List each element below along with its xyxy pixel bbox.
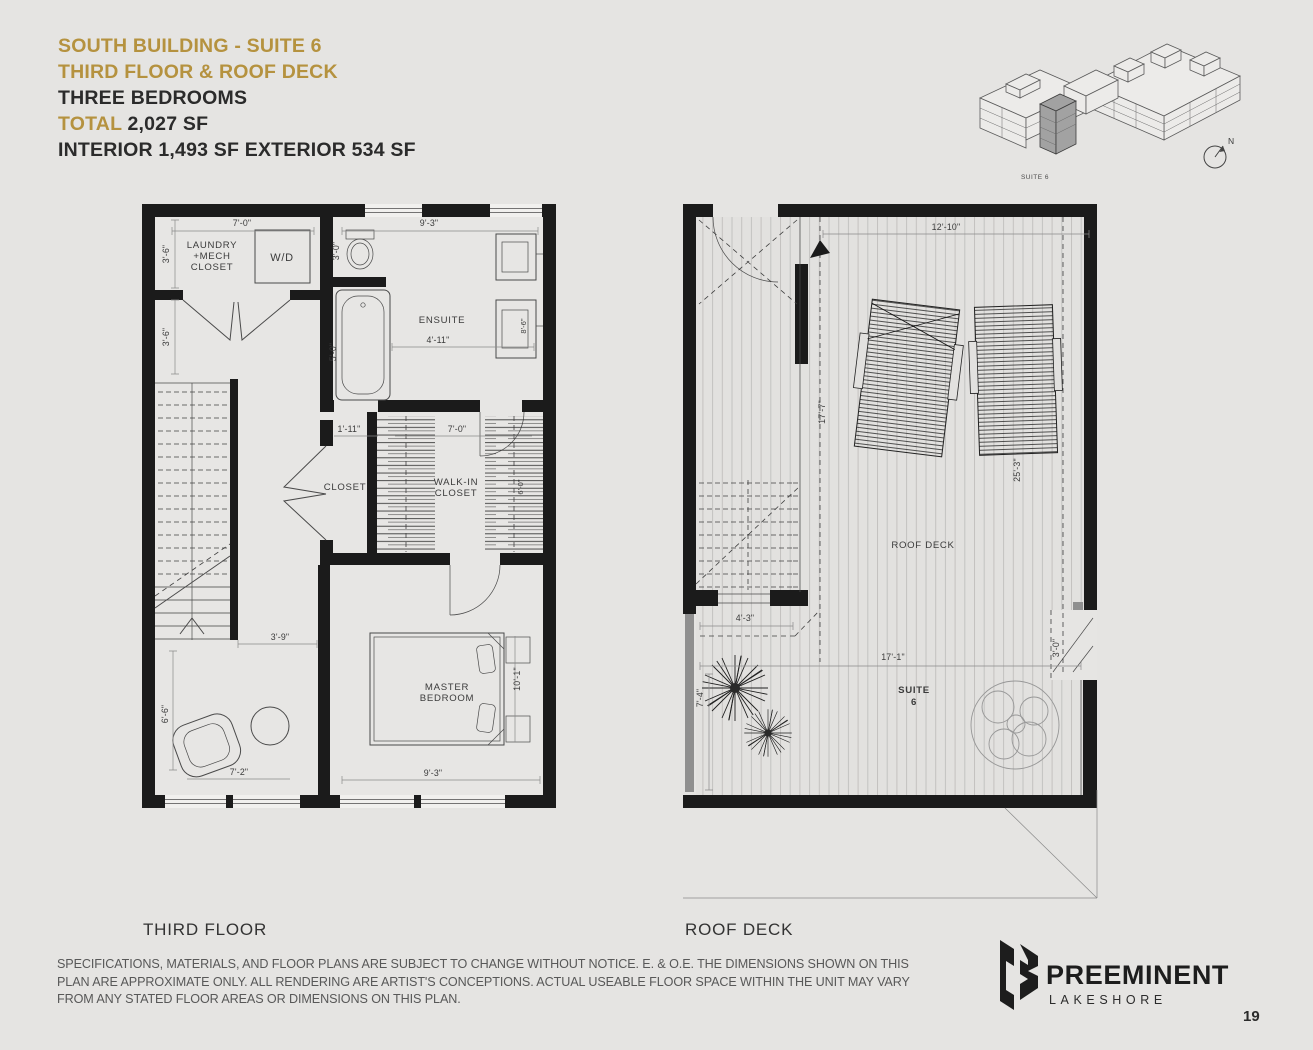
lounge-chair: [967, 304, 1064, 455]
room-label-master: MASTER: [425, 682, 469, 693]
compass-north-label: N: [1228, 136, 1234, 146]
room-label-wd: W/D: [270, 252, 293, 264]
dim-label: 10'-1": [512, 667, 522, 691]
room-label-laundry: +MECH: [193, 251, 230, 262]
dim-label: 3'-6": [161, 245, 171, 264]
total-label: TOTAL: [58, 113, 122, 135]
total-line: TOTAL 2,027 SF: [58, 111, 416, 137]
page-number: 19: [1243, 1008, 1260, 1025]
locator-suite-label: SUITE 6: [1021, 174, 1049, 181]
page-title: SOUTH BUILDING - SUITE 6: [58, 33, 416, 59]
dim-label: 4'-3": [736, 613, 755, 623]
dim-label: 25'-3": [1012, 458, 1022, 482]
dim-label: 6'-0": [516, 479, 525, 494]
area-detail-line: INTERIOR 1,493 SF EXTERIOR 534 SF: [58, 137, 416, 163]
dim-label: 3'-0": [331, 242, 341, 261]
room-label-roof-deck: ROOF DECK: [891, 540, 954, 551]
room-label-laundry: CLOSET: [191, 262, 234, 273]
roof-deck-caption: ROOF DECK: [685, 920, 793, 940]
dim-label: 7'-0": [233, 218, 252, 228]
total-value: 2,027 SF: [122, 113, 208, 135]
dim-label: 3'-0": [1051, 639, 1061, 658]
third-floor-caption: THIRD FLOOR: [143, 920, 267, 940]
brand-name: PREEMINENT: [1046, 960, 1229, 991]
dim-label: 9'-3": [420, 218, 439, 228]
dim-label: 5'-0": [328, 343, 338, 362]
room-label-master: BEDROOM: [420, 693, 474, 704]
room-label-walkin: WALK-IN: [434, 477, 479, 488]
brochure-page: SOUTH BUILDING - SUITE 6 THIRD FLOOR & R…: [0, 0, 1313, 1050]
dim-label: 9'-3": [424, 768, 443, 778]
dim-label: 3'-9": [271, 632, 290, 642]
dim-label: 4'-11": [427, 335, 450, 345]
dim-label: 17'-7": [817, 400, 827, 424]
room-label-laundry: LAUNDRY: [187, 240, 238, 251]
dim-label: 1'-11": [338, 424, 361, 434]
bedrooms-line: THREE BEDROOMS: [58, 85, 416, 111]
compass-icon: [1204, 146, 1226, 168]
staircase: [155, 383, 230, 640]
third-floor-plan: 7'-0" 9'-3" 3'-6" 3'-6" 3'-0" 5'-0" 4'-1…: [142, 204, 556, 808]
dim-label: 3'-6": [161, 328, 171, 347]
page-subtitle: THIRD FLOOR & ROOF DECK: [58, 59, 416, 85]
brand-logo-mark: [998, 940, 1044, 1012]
dim-label: 17'-1": [881, 652, 905, 662]
room-label-walkin: CLOSET: [435, 488, 478, 499]
disclaimer-line: FROM ANY STATED FLOOR AREAS OR DIMENSION…: [57, 991, 910, 1009]
dim-label: 7'-0": [448, 424, 467, 434]
disclaimer-line: PLAN ARE APPROXIMATE ONLY. ALL RENDERING…: [57, 974, 910, 992]
header: SOUTH BUILDING - SUITE 6 THIRD FLOOR & R…: [58, 33, 416, 163]
room-label-ensuite: ENSUITE: [419, 315, 465, 326]
dim-label: 6'-6": [160, 705, 170, 724]
dim-label: 7'-2": [230, 767, 249, 777]
disclaimer-line: SPECIFICATIONS, MATERIALS, AND FLOOR PLA…: [57, 956, 910, 974]
dim-label: 8'-6": [519, 318, 528, 333]
building-locator: SUITE 6 N: [968, 26, 1253, 191]
brand-subtitle: LAKESHORE: [1049, 993, 1167, 1007]
planter-strip-left: [685, 614, 694, 792]
dim-label: 7'-4": [695, 689, 705, 708]
room-label-closet: CLOSET: [324, 482, 367, 493]
dim-label: 12'-10": [932, 222, 961, 232]
roof-deck-plan: 12'-10" 17'-7" 25'-3" ROOF DECK 4'-3" 17…: [683, 204, 1097, 904]
suite-highlight-block: [1040, 94, 1076, 154]
disclaimer-text: SPECIFICATIONS, MATERIALS, AND FLOOR PLA…: [57, 956, 910, 1009]
suite-label: 6: [911, 697, 917, 708]
suite-label: SUITE: [898, 685, 930, 696]
